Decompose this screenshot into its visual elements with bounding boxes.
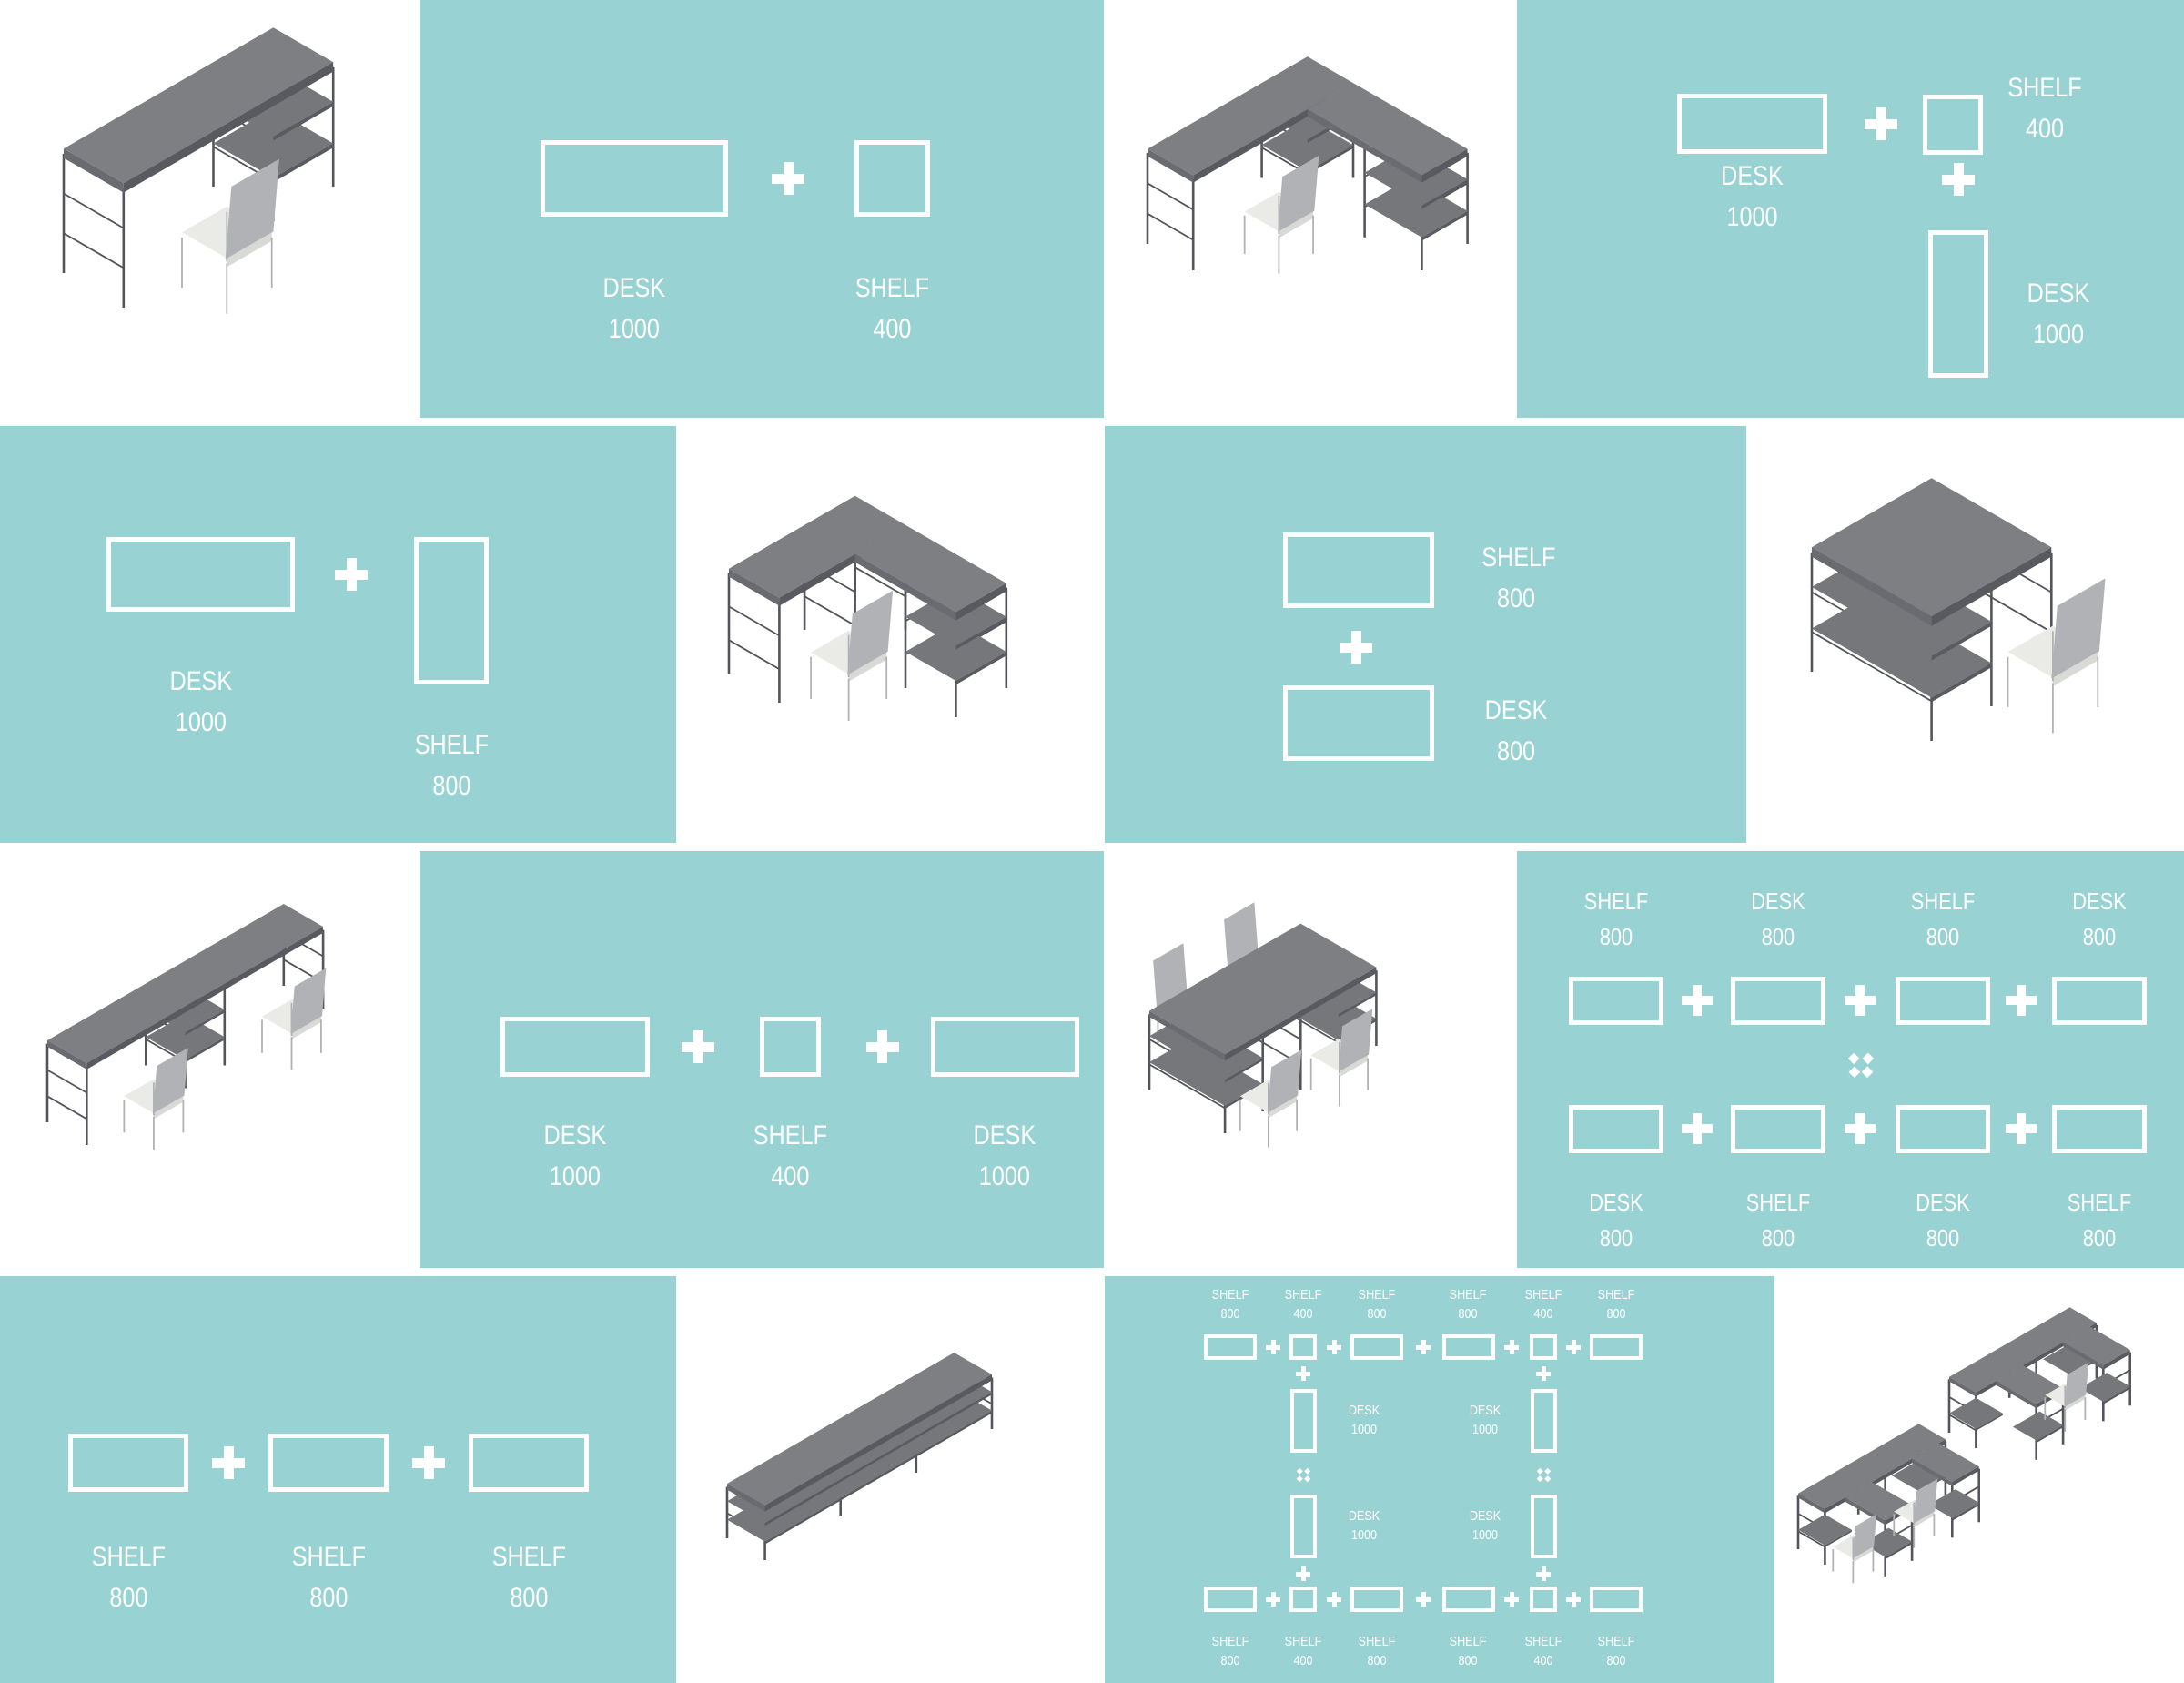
office-cluster-illustration	[1774, 1276, 2184, 1683]
double-sided-desk-illustration	[1104, 851, 1517, 1268]
shelf-desk-block-illustration	[1746, 426, 2184, 843]
desk-1000-vertical-plan-rect	[1928, 230, 1988, 378]
desk-1000-label: DESK1000	[1328, 1401, 1400, 1439]
shelf-800-label: SHELF800	[1345, 1285, 1409, 1323]
desk-800-label: DESK800	[1888, 1185, 1997, 1256]
desk-1000-label: DESK1000	[597, 268, 672, 350]
shelf-sideboard-illustration	[676, 1276, 1105, 1683]
shelf-400-label: SHELF400	[746, 1115, 834, 1197]
shelf-800-plan-rect-3	[469, 1434, 589, 1492]
plus-icon	[1266, 1592, 1280, 1607]
desk-with-shelf-wing-illustration	[676, 426, 1105, 843]
shelf-800-module-2: SHELF800	[268, 1434, 389, 1618]
desk-1000-label: DESK1000	[164, 661, 238, 743]
diagram-desk1000-plus-shelf400: DESK1000 SHELF400	[420, 0, 1104, 418]
double-desk-illustration	[0, 851, 420, 1268]
shelf-800-label: SHELF800	[1724, 1185, 1833, 1256]
plus-icon	[1327, 1340, 1341, 1354]
plus-icon	[1266, 1340, 1280, 1354]
plan-rect	[1731, 977, 1825, 1025]
iso-cell-shelf-desk-block	[1746, 426, 2184, 843]
desk-1000-plan-rect	[1531, 1495, 1557, 1558]
l-shaped-desk-illustration	[1104, 0, 1517, 418]
plan-rect	[1530, 1587, 1557, 1612]
plan-rect	[1204, 1587, 1257, 1612]
shelf-800-label-2: SHELF800	[285, 1536, 373, 1618]
desk-800-label: DESK800	[1724, 884, 1833, 955]
iso-cell-double-sided-desk	[1104, 851, 1517, 1268]
diagram-shelf800-plus-desk800: SHELF800 DESK800	[1105, 426, 1746, 843]
plus-icon	[1504, 1340, 1519, 1354]
diagram-800-series-double-row: SHELF800 DESK800 SHELF800 DESK800 DESK80…	[1517, 851, 2184, 1268]
desk-1000-label-2: DESK1000	[967, 1115, 1042, 1197]
plan-rect	[1204, 1334, 1257, 1360]
plus-icon	[1416, 1592, 1431, 1607]
multiply-icon	[1842, 1046, 1880, 1084]
desk-800-label: DESK800	[1562, 1185, 1671, 1256]
iso-cell-l-desk	[1104, 0, 1517, 418]
shelf-800-label: SHELF800	[2045, 1185, 2154, 1256]
plus-icon	[866, 1030, 899, 1063]
desk-1000-plan-rect	[541, 140, 728, 217]
plus-icon	[1682, 985, 1713, 1016]
plan-rect	[2052, 977, 2147, 1025]
desk-1000-module-2: DESK1000	[931, 1017, 1079, 1197]
desk-1000-plan-rect-2	[931, 1017, 1079, 1077]
plan-rect	[1590, 1587, 1643, 1612]
plus-icon	[412, 1446, 445, 1479]
shelf-400-label: SHELF400	[1512, 1285, 1575, 1323]
shelf-400-module: SHELF400	[746, 1017, 834, 1197]
diagram-shelf-desk-cluster-plan: SHELF800 SHELF400 SHELF800 SHELF800 SHEL…	[1105, 1276, 1774, 1683]
iso-cell-sideboard	[676, 1276, 1105, 1683]
plus-icon	[335, 558, 368, 591]
diagram-desk1000-shelf400-desk1000: DESK1000 SHELF400 DESK1000	[420, 851, 1104, 1268]
plus-icon	[1416, 1340, 1431, 1354]
plus-icon	[1536, 1366, 1551, 1381]
plus-icon	[2006, 985, 2037, 1016]
multiply-icon	[1532, 1464, 1554, 1485]
desk-1000-label-2: DESK1000	[2004, 273, 2113, 355]
plus-icon	[212, 1446, 245, 1479]
plus-icon	[1845, 985, 1876, 1016]
iso-cell-double-desk	[0, 851, 420, 1268]
shelf-800-plan-rect-2	[268, 1434, 389, 1492]
plus-icon	[2006, 1113, 2037, 1144]
shelf-800-plan-rect	[1283, 532, 1434, 608]
desk-800-plan-rect	[1283, 685, 1434, 761]
multiply-icon	[1292, 1464, 1314, 1485]
diagram-shelf800-x3: SHELF800 SHELF800 SHELF800	[0, 1276, 676, 1683]
shelf-400-label: SHELF400	[1995, 67, 2095, 149]
plus-icon	[1682, 1113, 1713, 1144]
desk-1000-plan-rect	[106, 537, 295, 612]
shelf-800-plan-rect	[414, 537, 489, 684]
shelf-800-label-3: SHELF800	[485, 1536, 573, 1618]
plus-icon	[682, 1030, 714, 1063]
shelf-400-label: SHELF400	[848, 268, 936, 350]
desk-1000-module: DESK1000	[500, 1017, 650, 1197]
desk-shelf-chair-illustration	[0, 0, 420, 418]
shelf-800-label: SHELF800	[1584, 1285, 1648, 1323]
shelf-400-plan-rect	[854, 140, 930, 217]
desk-1000-plan-rect	[500, 1017, 650, 1077]
diagram-desk1000-plus-shelf800: DESK1000 SHELF800	[0, 426, 676, 843]
shelf-800-module-3: SHELF800	[469, 1434, 589, 1618]
plan-rect	[1442, 1334, 1495, 1360]
shelf-400-plan-rect	[1923, 95, 1983, 155]
plan-rect	[1289, 1334, 1317, 1360]
plan-rect	[1350, 1334, 1403, 1360]
desk-1000-plan-rect	[1290, 1495, 1317, 1558]
shelf-800-label: SHELF800	[408, 725, 496, 806]
plus-icon	[772, 162, 804, 195]
desk-1000-plan-rect	[1531, 1389, 1557, 1453]
shelf-800-label: SHELF800	[1436, 1632, 1500, 1670]
plus-icon	[1566, 1592, 1581, 1607]
plus-icon	[1340, 631, 1372, 664]
plan-rect	[1569, 977, 1663, 1025]
diagram-desk1000-shelf400-desk1000-corner: SHELF400 DESK1000 DESK1000	[1517, 0, 2184, 418]
desk-1000-label: DESK1000	[1328, 1506, 1400, 1545]
desk-1000-module: DESK1000	[106, 537, 295, 743]
shelf-800-label: SHELF800	[1198, 1285, 1262, 1323]
shelf-800-module: SHELF800	[408, 537, 496, 806]
shelf-400-label: SHELF400	[1271, 1632, 1335, 1670]
desk-800-label: DESK800	[2045, 884, 2154, 955]
shelf-800-label: SHELF800	[1562, 884, 1671, 955]
plan-rect	[1350, 1587, 1403, 1612]
desk-1000-plan-rect	[1677, 94, 1827, 154]
shelf-800-label: SHELF800	[1888, 884, 1997, 955]
shelf-800-module: SHELF800	[68, 1434, 188, 1618]
plus-icon	[1536, 1566, 1551, 1581]
desk-1000-label: DESK1000	[1677, 156, 1827, 238]
plus-icon	[1942, 163, 1975, 196]
desk-1000-module: DESK1000	[541, 140, 728, 350]
plan-rect	[1896, 1105, 1990, 1153]
plus-icon	[1865, 107, 1897, 140]
plan-rect	[1896, 977, 1990, 1025]
desk-1000-label: DESK1000	[1449, 1401, 1522, 1439]
plus-icon	[1845, 1113, 1876, 1144]
iso-cell-office-cluster	[1774, 1276, 2184, 1683]
plus-icon	[1504, 1592, 1519, 1607]
shelf-400-plan-rect	[760, 1017, 821, 1077]
furniture-combination-sheet: DESK1000 SHELF400 SHELF400 DESK1000	[0, 0, 2184, 1683]
plus-icon	[1296, 1366, 1310, 1381]
plan-rect	[1590, 1334, 1643, 1360]
shelf-800-label: SHELF800	[1198, 1632, 1262, 1670]
shelf-800-plan-rect	[68, 1434, 188, 1492]
plan-rect	[1731, 1105, 1825, 1153]
desk-1000-label: DESK1000	[1449, 1506, 1522, 1545]
shelf-800-label: SHELF800	[1345, 1632, 1409, 1670]
shelf-800-label: SHELF800	[1475, 537, 1557, 619]
plan-rect	[1442, 1587, 1495, 1612]
plan-rect	[1289, 1587, 1317, 1612]
plan-rect	[2052, 1105, 2147, 1153]
shelf-400-label: SHELF400	[1512, 1632, 1575, 1670]
iso-cell-desk-shelf-wing	[676, 426, 1105, 843]
shelf-800-label: SHELF800	[1584, 1632, 1648, 1670]
plan-rect	[1530, 1334, 1557, 1360]
desk-1000-label: DESK1000	[538, 1115, 612, 1197]
shelf-400-label: SHELF400	[1271, 1285, 1335, 1323]
plus-icon	[1327, 1592, 1341, 1607]
shelf-400-module: SHELF400	[848, 140, 936, 350]
plan-rect	[1569, 1105, 1663, 1153]
shelf-800-label: SHELF800	[1436, 1285, 1500, 1323]
plus-icon	[1296, 1566, 1310, 1581]
iso-cell-desk1000-shelf400	[0, 0, 420, 418]
plus-icon	[1566, 1340, 1581, 1354]
desk-800-label: DESK800	[1475, 690, 1557, 772]
desk-1000-plan-rect	[1290, 1389, 1317, 1453]
shelf-800-label: SHELF800	[85, 1536, 173, 1618]
